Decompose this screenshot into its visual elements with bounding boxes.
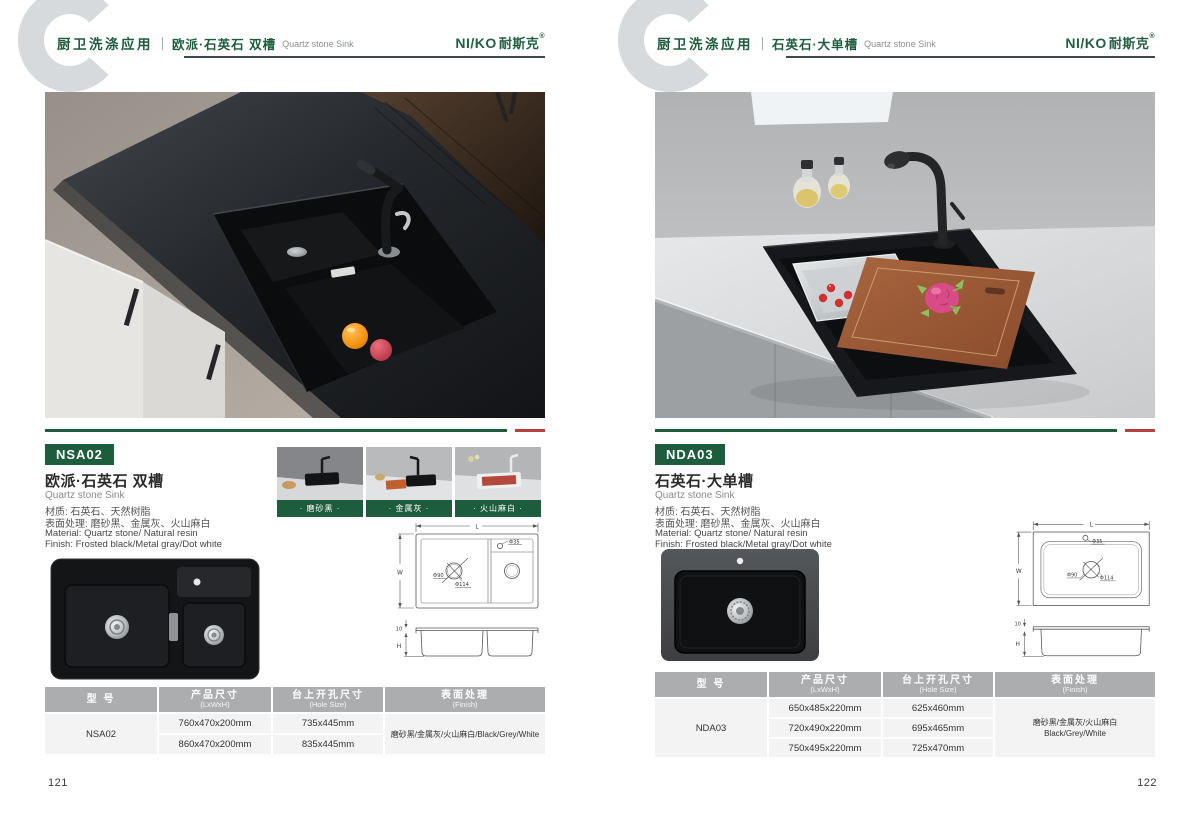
header-product-title-en: Quartz stone Sink xyxy=(282,37,354,49)
model-badge: NDA03 xyxy=(655,444,725,465)
product-top-view-photo xyxy=(45,555,265,685)
dim-label-depth: 10 xyxy=(396,627,403,633)
brand-logo-cn: 耐斯克 xyxy=(499,36,540,51)
product-name-en: Quartz stone Sink xyxy=(45,490,124,501)
page-header: 厨卫洗涤应用 石英石·大单槽 Quartz stone Sink xyxy=(657,34,936,52)
table-header-size: 产品尺寸(LxWxH) xyxy=(769,672,881,697)
table-header-hole: 台上开孔尺寸(Hole Size) xyxy=(883,672,993,697)
table-cell-hole: 725x470mm xyxy=(883,739,993,757)
swatch-label: · 磨砂黑 · xyxy=(277,500,363,517)
table-cell-hole: 625x460mm xyxy=(883,699,993,717)
dim-label-depth: 10 xyxy=(1015,621,1021,627)
product-name-cn: 石英石·大单槽 xyxy=(655,470,754,491)
registered-mark: ® xyxy=(1149,33,1155,40)
table-cell-size: 760x470x200mm xyxy=(159,714,271,733)
swatch-frosted-black: · 磨砂黑 · xyxy=(277,447,363,517)
dim-label-H: H xyxy=(397,643,402,650)
brand-logo: NI/KO耐斯克® xyxy=(455,33,545,52)
dim-label-W: W xyxy=(1016,569,1022,575)
window-light xyxy=(751,92,893,125)
model-badge: NSA02 xyxy=(45,444,114,465)
header-category: 厨卫洗涤应用 xyxy=(57,33,153,53)
catalog-page-left: 厨卫洗涤应用 欧派·石英石 双槽 Quartz stone Sink NI/KO… xyxy=(0,0,600,820)
table-header-finish: 表面处理(Finish) xyxy=(995,672,1155,697)
table-cell-size: 650x485x220mm xyxy=(769,699,881,717)
product-name-en: Quartz stone Sink xyxy=(655,490,734,501)
brand-logo-text: NI/KO xyxy=(1065,35,1106,51)
table-cell-size: 860x470x200mm xyxy=(159,735,271,754)
product-name-cn: 欧派·石英石 双槽 xyxy=(45,470,164,491)
dim-label-drain-large: Φ114 xyxy=(455,582,470,588)
dim-label-H: H xyxy=(1016,642,1020,648)
swatch-image-gray xyxy=(366,447,452,500)
technical-drawing-double: L W Φ35 Φ90 Φ114 10 H xyxy=(390,520,545,665)
table-cell-size: 720x490x220mm xyxy=(769,719,881,737)
header-product-title: 石英石·大单槽 xyxy=(772,34,858,53)
accent-line-red xyxy=(515,429,545,433)
page-number: 122 xyxy=(1137,777,1157,789)
main-product-photo xyxy=(45,92,545,418)
spec-table: 型 号 产品尺寸(LxWxH) 台上开孔尺寸(Hole Size) 表面处理(F… xyxy=(655,672,1155,757)
swatch-metal-gray: · 金属灰 · xyxy=(366,447,452,517)
accent-line xyxy=(45,428,545,432)
dim-label-hole: Φ35 xyxy=(509,540,520,546)
spec-table: 型 号 产品尺寸(LxWxH) 台上开孔尺寸(Hole Size) 表面处理(F… xyxy=(45,687,545,754)
header-divider xyxy=(762,37,763,50)
page-number: 121 xyxy=(48,777,68,789)
table-cell-hole: 735x445mm xyxy=(273,714,383,733)
dim-label-drain-large: Φ114 xyxy=(1100,575,1114,581)
swatch-label: · 金属灰 · xyxy=(366,500,452,517)
table-header-model: 型 号 xyxy=(45,687,157,712)
table-header-model: 型 号 xyxy=(655,672,767,697)
header-divider xyxy=(162,37,163,50)
page-header: 厨卫洗涤应用 欧派·石英石 双槽 Quartz stone Sink xyxy=(57,34,354,52)
header-rule xyxy=(786,56,1155,58)
swatch-dot-white: · 火山麻白 · xyxy=(455,447,541,517)
table-cell-model: NDA03 xyxy=(655,699,767,757)
dim-label-drain-small: Φ90 xyxy=(433,573,444,579)
brand-logo-text: NI/KO xyxy=(455,35,496,51)
double-sink-scene xyxy=(45,92,545,418)
table-cell-hole: 835x445mm xyxy=(273,735,383,754)
brand-logo: NI/KO耐斯克® xyxy=(1065,33,1155,52)
technical-drawing-single: L W Φ35 Φ90 Φ114 10 H xyxy=(1010,516,1155,666)
material-en: Material: Quartz stone/ Natural resin xyxy=(655,528,808,539)
material-en: Material: Quartz stone/ Natural resin xyxy=(45,528,198,539)
swatch-image-white xyxy=(455,447,541,500)
finish-en: Finish: Frosted black/Metal gray/Dot whi… xyxy=(45,539,222,550)
table-header-hole: 台上开孔尺寸(Hole Size) xyxy=(273,687,383,712)
dim-label-L: L xyxy=(475,524,479,531)
table-header-finish: 表面处理(Finish) xyxy=(385,687,545,712)
accent-line-green xyxy=(45,429,507,432)
accent-line xyxy=(655,428,1155,432)
registered-mark: ® xyxy=(539,33,545,40)
header-product-title-en: Quartz stone Sink xyxy=(864,37,936,49)
table-cell-finish: 磨砂黑/金属灰/火山麻白/Black/Grey/White xyxy=(385,714,545,754)
single-sink-scene xyxy=(655,92,1155,418)
finish-swatches: · 磨砂黑 · · 金属灰 · · 火山麻白 · xyxy=(277,447,541,517)
dim-label-W: W xyxy=(397,570,403,577)
table-cell-model: NSA02 xyxy=(45,714,157,754)
dim-label-drain-small: Φ90 xyxy=(1067,573,1077,579)
product-top-view-photo xyxy=(655,545,825,665)
swatch-label: · 火山麻白 · xyxy=(455,500,541,517)
dim-label-L: L xyxy=(1090,523,1094,529)
accent-line-green xyxy=(655,429,1117,432)
table-cell-finish: 磨砂黑/金属灰/火山麻白Black/Grey/White xyxy=(995,699,1155,757)
table-cell-size: 750x495x220mm xyxy=(769,739,881,757)
catalog-page-right: 厨卫洗涤应用 石英石·大单槽 Quartz stone Sink NI/KO耐斯… xyxy=(600,0,1200,820)
table-cell-hole: 695x465mm xyxy=(883,719,993,737)
header-product-title: 欧派·石英石 双槽 xyxy=(172,34,276,53)
header-rule xyxy=(184,56,545,58)
table-header-size: 产品尺寸(LxWxH) xyxy=(159,687,271,712)
accent-line-red xyxy=(1125,429,1155,433)
swatch-image-black xyxy=(277,447,363,500)
brand-logo-cn: 耐斯克 xyxy=(1109,36,1150,51)
header-category: 厨卫洗涤应用 xyxy=(657,33,753,53)
main-product-photo xyxy=(655,92,1155,418)
dim-label-hole: Φ35 xyxy=(1092,539,1102,545)
